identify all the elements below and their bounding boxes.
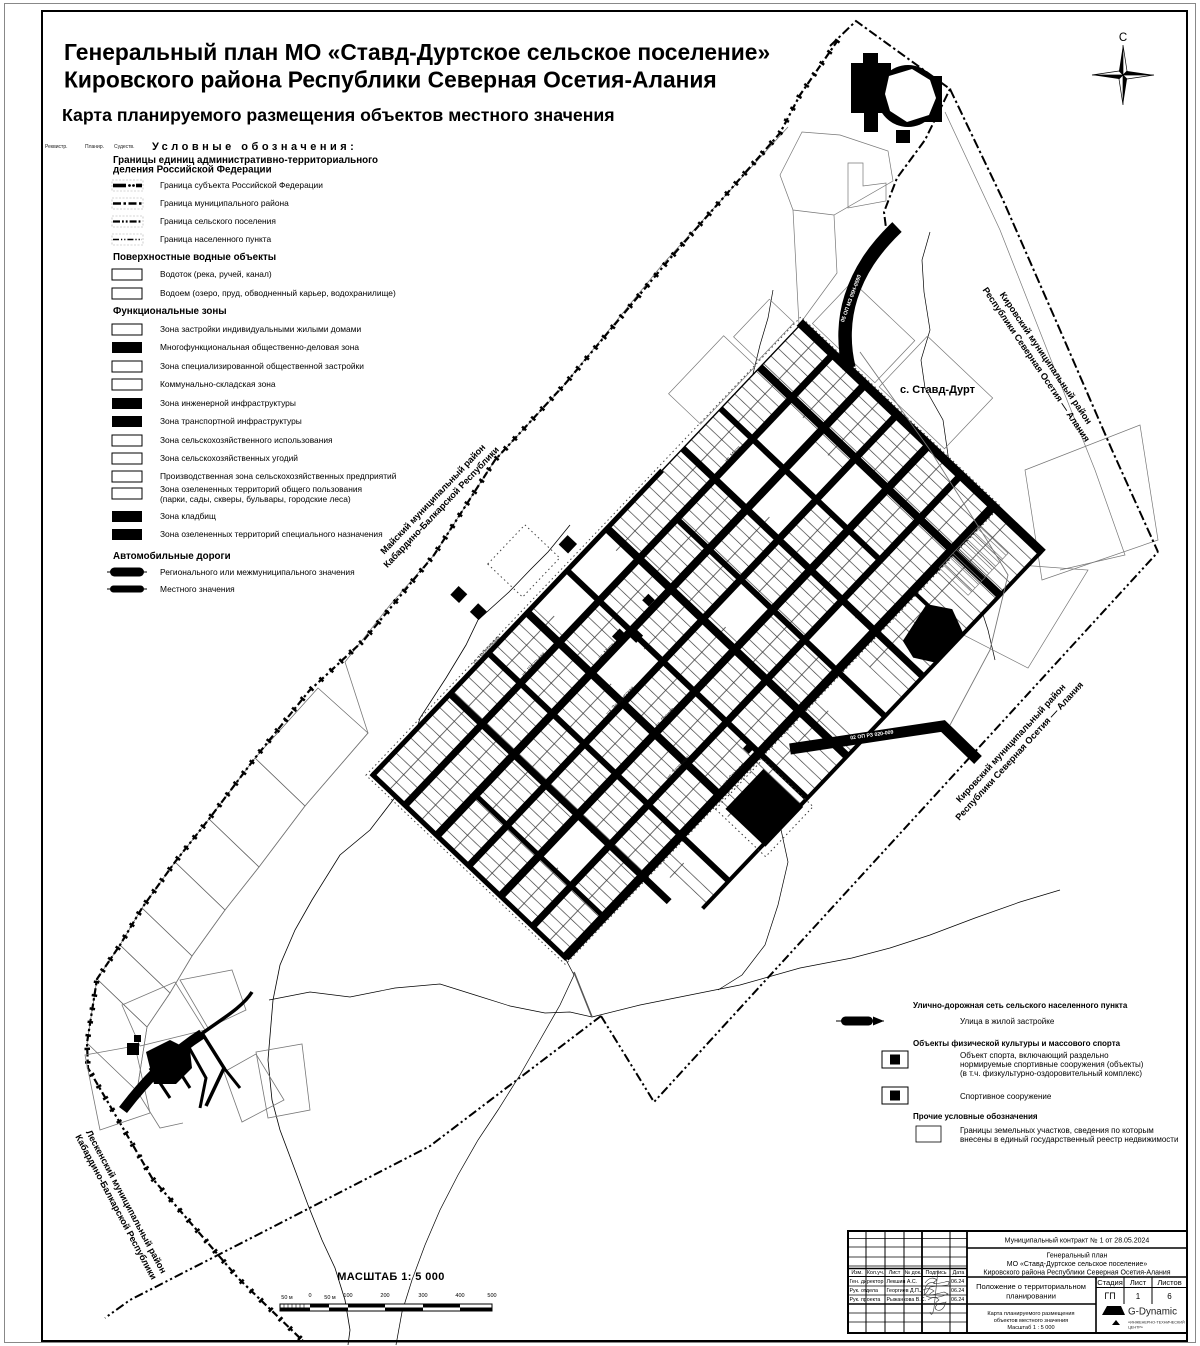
svg-text:Коммунально-складская зона: Коммунально-складская зона <box>160 379 276 389</box>
svg-text:ЦЕНТР»: ЦЕНТР» <box>1128 1326 1143 1330</box>
svg-text:Границы земельных участков, св: Границы земельных участков, сведения по … <box>960 1126 1154 1135</box>
svg-text:50 м: 50 м <box>281 1295 293 1301</box>
svg-text:06.24: 06.24 <box>951 1288 964 1294</box>
svg-text:Граница населенного пункта: Граница населенного пункта <box>160 234 271 244</box>
svg-text:внесены в единый государственн: внесены в единый государственный реестр … <box>960 1135 1178 1144</box>
svg-text:Георгиев Д.П.: Георгиев Д.П. <box>887 1288 921 1294</box>
svg-text:G-Dynamic: G-Dynamic <box>1128 1307 1177 1318</box>
svg-text:0: 0 <box>308 1293 311 1299</box>
svg-text:МАСШТАБ 1: 5 000: МАСШТАБ 1: 5 000 <box>337 1271 445 1283</box>
svg-text:Спортивное сооружение: Спортивное сооружение <box>960 1092 1052 1101</box>
svg-text:(парки, сады, скверы, бульвары: (парки, сады, скверы, бульвары, городски… <box>160 494 351 504</box>
svg-text:Объект спорта, включающий разд: Объект спорта, включающий раздельно <box>960 1051 1109 1060</box>
svg-text:Планир.: Планир. <box>85 144 104 150</box>
svg-text:Прочие условные обозначения: Прочие условные обозначения <box>913 1112 1038 1121</box>
svg-text:С: С <box>1119 32 1127 44</box>
svg-text:Местного значения: Местного значения <box>160 584 235 594</box>
svg-text:с. Ставд-Дурт: с. Ставд-Дурт <box>900 384 976 396</box>
svg-text:планировании: планировании <box>1006 1292 1056 1301</box>
svg-text:Кол.уч.: Кол.уч. <box>867 1270 884 1276</box>
svg-text:Зона озелененных территорий сп: Зона озелененных территорий специального… <box>160 529 383 539</box>
svg-text:100: 100 <box>343 1293 352 1299</box>
svg-text:нормируемые спортивные сооруже: нормируемые спортивные сооружения (объек… <box>960 1060 1144 1069</box>
svg-text:объектов местного значения: объектов местного значения <box>994 1318 1068 1324</box>
svg-text:Зона кладбищ: Зона кладбищ <box>160 511 216 521</box>
svg-text:Многофункциональная общественн: Многофункциональная общественно-деловая … <box>160 342 359 352</box>
svg-text:Объекты физической культуры и: Объекты физической культуры и массового … <box>913 1039 1121 1048</box>
svg-text:МО «Ставд-Дуртское сельское по: МО «Ставд-Дуртское сельское поселение» <box>1007 1261 1148 1268</box>
svg-text:Лист: Лист <box>889 1270 901 1276</box>
svg-text:Граница субъекта Российской Фе: Граница субъекта Российской Федерации <box>160 180 323 190</box>
svg-text:Автомобильные дороги: Автомобильные дороги <box>113 551 231 562</box>
svg-text:Кировского района Республики С: Кировского района Республики Северная Ос… <box>64 67 717 93</box>
svg-text:№ док.: № док. <box>905 1270 922 1276</box>
svg-text:Положение о территориальном: Положение о территориальном <box>976 1282 1086 1291</box>
svg-text:Рыжанкова В.С.: Рыжанкова В.С. <box>887 1297 927 1303</box>
svg-text:6: 6 <box>1167 1292 1172 1301</box>
svg-text:1: 1 <box>1136 1292 1141 1301</box>
svg-text:Реквистр.: Реквистр. <box>45 144 68 150</box>
svg-text:Зона инженерной инфраструктуры: Зона инженерной инфраструктуры <box>160 398 296 408</box>
svg-text:06.24: 06.24 <box>951 1279 964 1285</box>
svg-text:Карта планируемого размещения: Карта планируемого размещения <box>987 1311 1074 1317</box>
svg-text:200: 200 <box>380 1293 389 1299</box>
svg-text:«ИНЖЕНЕРНО-ТЕХНИЧЕСКИЙ: «ИНЖЕНЕРНО-ТЕХНИЧЕСКИЙ <box>1128 1321 1185 1325</box>
svg-text:Зона специализированной общест: Зона специализированной общественной зас… <box>160 361 364 371</box>
svg-text:Зона транспортной инфраструкту: Зона транспортной инфраструктуры <box>160 416 302 426</box>
svg-text:Масштаб 1 : 5 000: Масштаб 1 : 5 000 <box>1007 1325 1054 1331</box>
svg-text:Дата: Дата <box>953 1270 965 1276</box>
svg-text:Стадия: Стадия <box>1097 1278 1123 1287</box>
svg-text:Регионального или межмуниципал: Регионального или межмуниципального знач… <box>160 567 355 577</box>
svg-text:Граница сельского поселения: Граница сельского поселения <box>160 216 276 226</box>
svg-text:Лекшин А.С.: Лекшин А.С. <box>887 1279 918 1285</box>
svg-text:50 м: 50 м <box>324 1295 336 1301</box>
svg-text:Водоем (озеро, пруд, обводненн: Водоем (озеро, пруд, обводненный карьер,… <box>160 288 396 298</box>
svg-text:Условные обозначения:: Условные обозначения: <box>152 141 357 153</box>
svg-text:Ген. директор: Ген. директор <box>850 1279 884 1285</box>
svg-text:Зона озелененных территорий об: Зона озелененных территорий общего польз… <box>160 484 362 494</box>
svg-text:Листов: Листов <box>1157 1278 1181 1287</box>
svg-text:Функциональные зоны: Функциональные зоны <box>113 306 227 317</box>
svg-text:300: 300 <box>418 1293 427 1299</box>
svg-text:Муниципальный контракт № 1 от: Муниципальный контракт № 1 от 28.05.2024 <box>1005 1237 1150 1245</box>
svg-text:Производственная зона сельскох: Производственная зона сельскохозяйственн… <box>160 471 397 481</box>
svg-text:Судеств.: Судеств. <box>114 144 134 150</box>
svg-text:Зона застройки индивидуальными: Зона застройки индивидуальными жилыми до… <box>160 324 361 334</box>
svg-text:Изм.: Изм. <box>851 1270 862 1276</box>
svg-text:(в т.ч. физкультурно-оздоровит: (в т.ч. физкультурно-оздоровительный ком… <box>960 1069 1142 1078</box>
svg-text:Кировского района Республики С: Кировского района Республики Северная Ос… <box>983 1269 1170 1277</box>
svg-text:Подпись: Подпись <box>926 1270 947 1276</box>
svg-text:Лист: Лист <box>1130 1278 1147 1287</box>
svg-text:Карта планируемого размещения: Карта планируемого размещения объектов м… <box>62 105 615 125</box>
svg-text:Рук. проекта: Рук. проекта <box>850 1297 881 1303</box>
svg-text:Генеральный план МО «Ставд-Дур: Генеральный план МО «Ставд-Дуртское сель… <box>64 39 770 65</box>
svg-text:Граница муниципального района: Граница муниципального района <box>160 198 289 208</box>
svg-text:деления Российской Федерации: деления Российской Федерации <box>113 165 272 176</box>
svg-text:Поверхностные водные объекты: Поверхностные водные объекты <box>113 252 276 263</box>
svg-text:400: 400 <box>455 1293 464 1299</box>
svg-text:Зона сельскохозяйственных угод: Зона сельскохозяйственных угодий <box>160 453 298 463</box>
svg-text:ГП: ГП <box>1104 1291 1115 1301</box>
svg-text:Улично-дорожная сеть сельского: Улично-дорожная сеть сельского населенно… <box>913 1001 1128 1010</box>
svg-text:Генеральный план: Генеральный план <box>1047 1252 1108 1260</box>
svg-text:Рук. отдела: Рук. отдела <box>850 1288 878 1294</box>
svg-text:Водоток (река, ручей, канал): Водоток (река, ручей, канал) <box>160 269 272 279</box>
svg-text:Улица в жилой застройке: Улица в жилой застройке <box>960 1017 1055 1026</box>
svg-text:06.24: 06.24 <box>951 1297 964 1303</box>
svg-text:Зона сельскохозяйственного исп: Зона сельскохозяйственного использования <box>160 435 333 445</box>
svg-text:500: 500 <box>487 1293 496 1299</box>
